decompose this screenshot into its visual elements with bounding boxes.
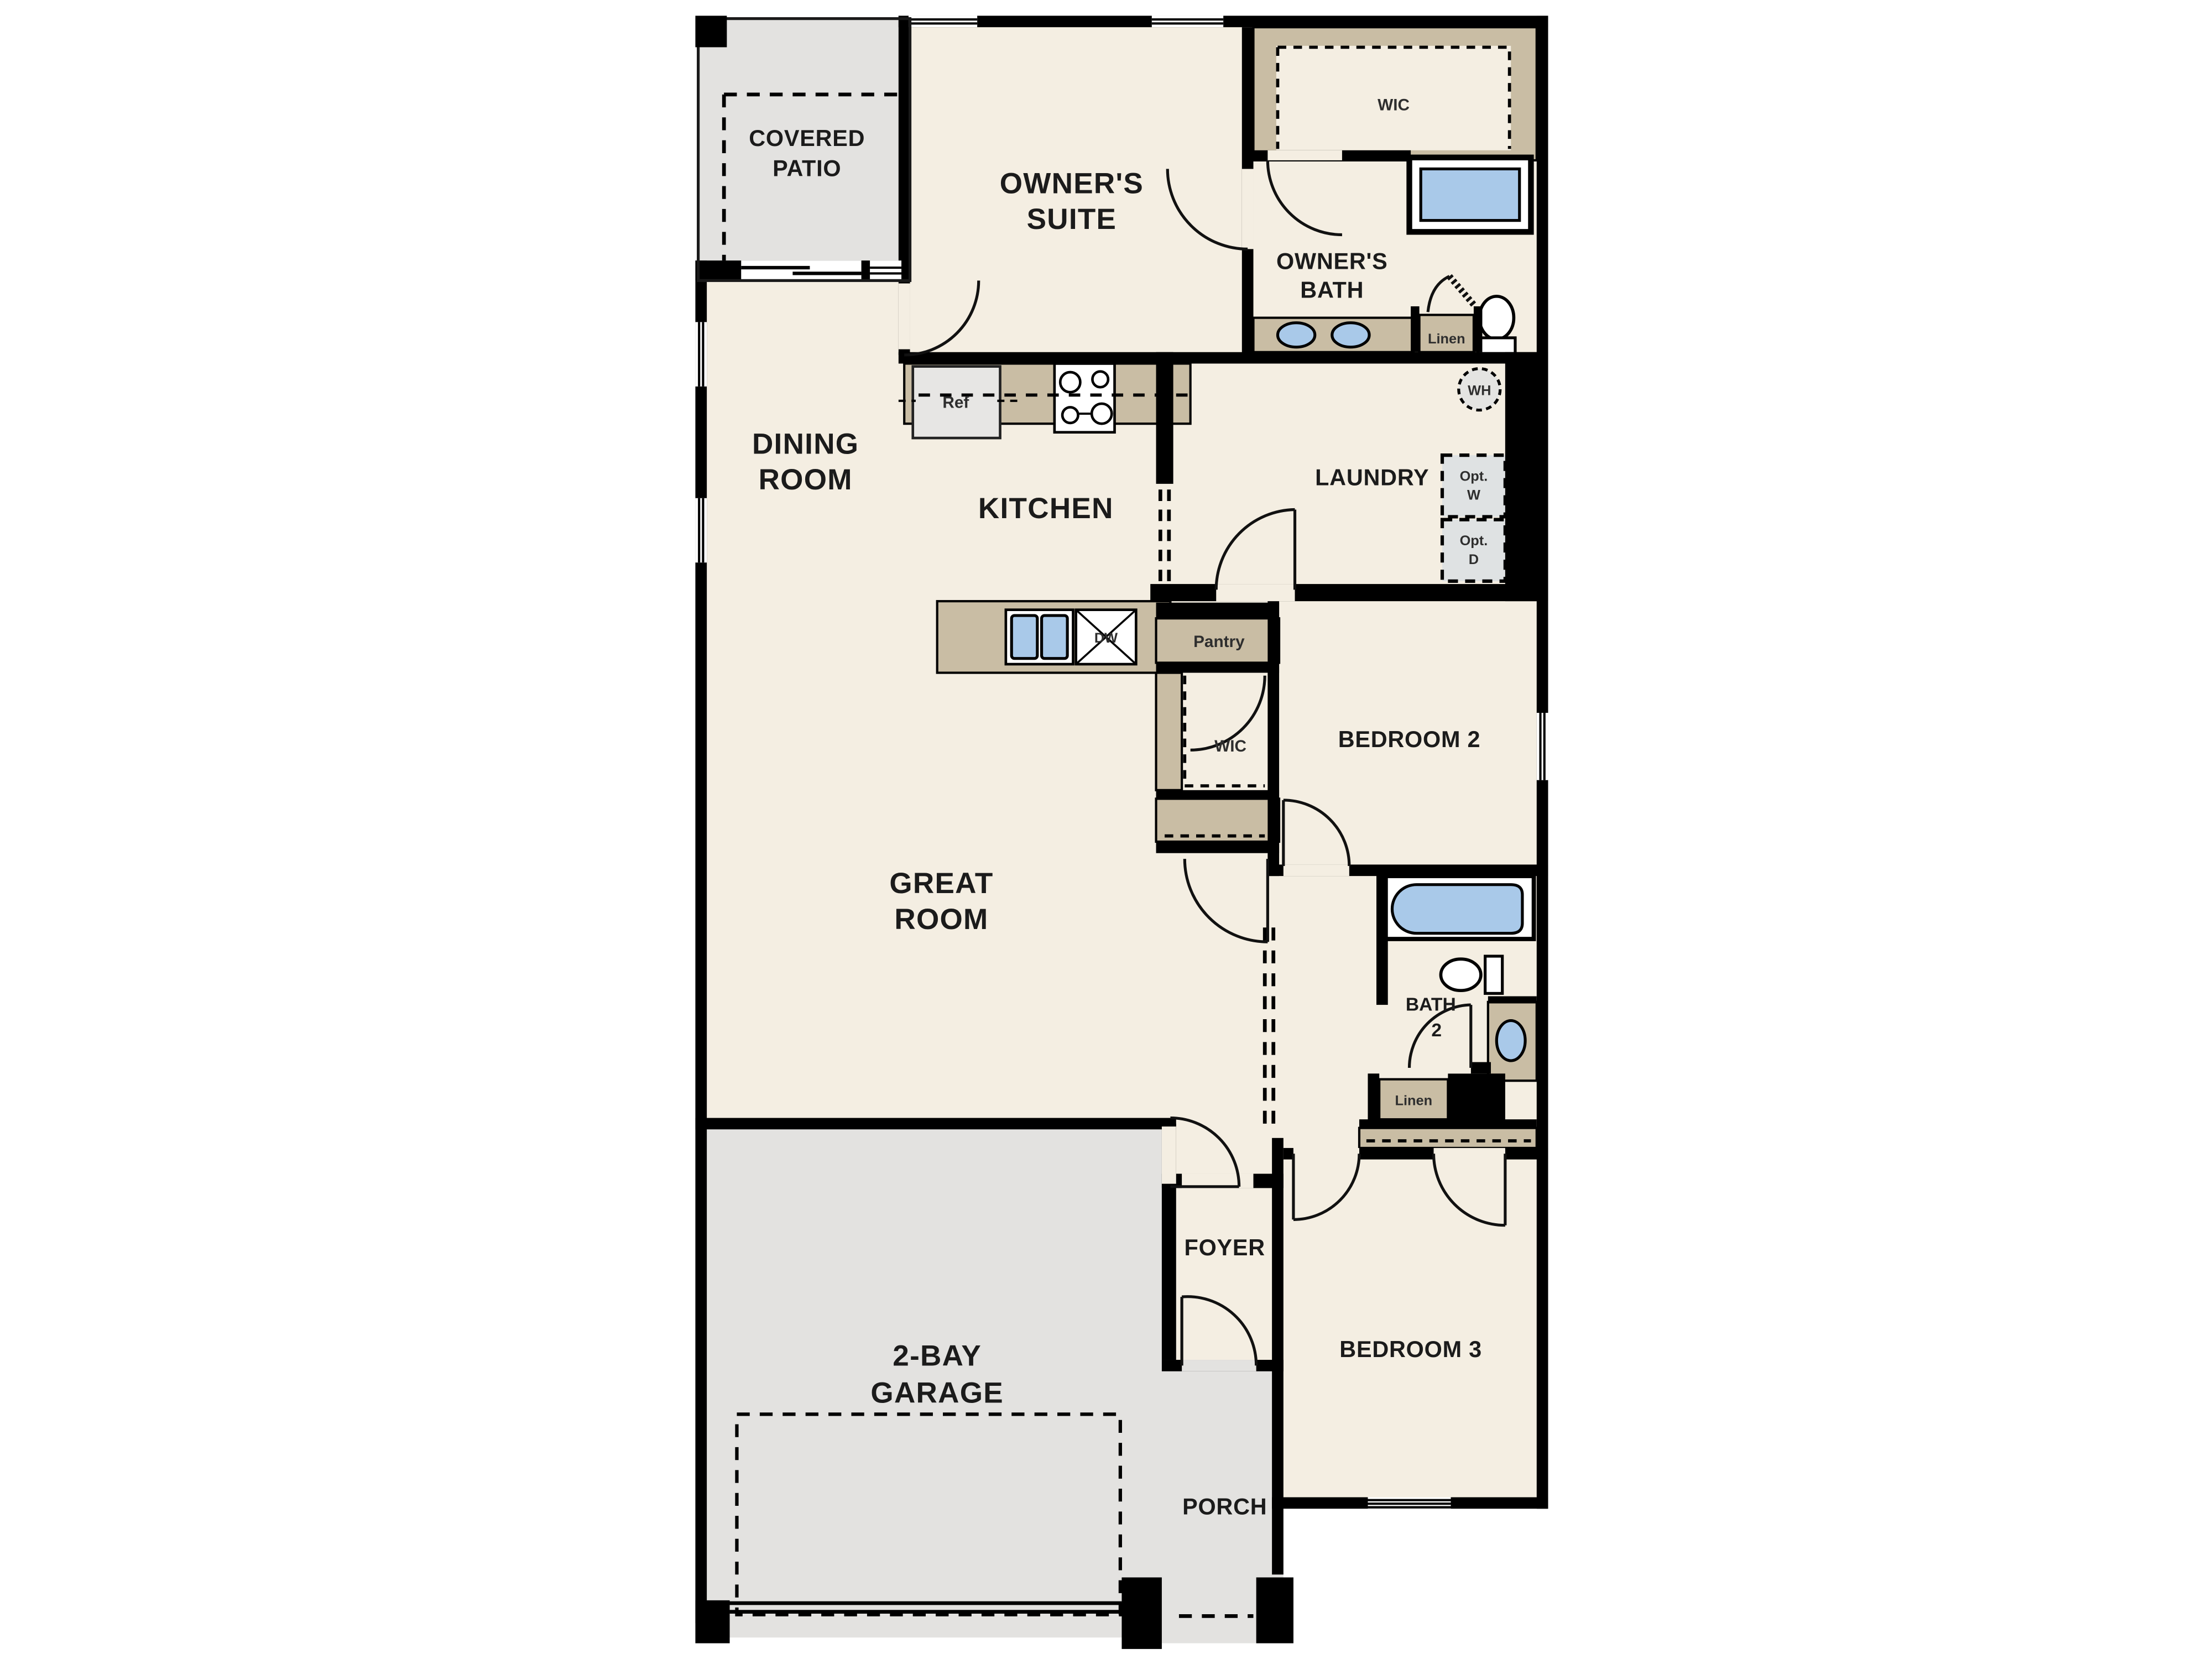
toilet-tank bbox=[1485, 956, 1503, 993]
wall-laundry-right-thick bbox=[1505, 352, 1548, 601]
toilet-icon bbox=[1441, 959, 1480, 990]
laundry-label: LAUNDRY bbox=[1315, 465, 1429, 490]
owner-linen-label: Linen bbox=[1428, 331, 1465, 347]
kitchen-label: KITCHEN bbox=[978, 492, 1114, 525]
toilet-icon bbox=[1479, 296, 1514, 340]
window-suite-top-1 bbox=[909, 15, 977, 27]
covered-patio-label-2: PATIO bbox=[773, 155, 841, 181]
dining-room-label: DINING bbox=[752, 428, 859, 461]
wall-bed3-entry-jamb bbox=[1284, 1148, 1293, 1160]
bedroom2-label: BEDROOM 2 bbox=[1338, 727, 1481, 752]
opening-owners-bath bbox=[1242, 169, 1254, 249]
owners-bath-label-2: BATH bbox=[1300, 277, 1364, 302]
dw-label: DW bbox=[1094, 630, 1118, 646]
bedroom3-closet-shelf bbox=[1359, 1128, 1537, 1148]
hall-wic-shelf-side bbox=[1156, 673, 1182, 790]
toilet-base bbox=[1478, 338, 1515, 353]
hall-wic-label: WIC bbox=[1214, 737, 1246, 755]
wall-closet3-front-right bbox=[1505, 1148, 1548, 1160]
garage-post-left bbox=[695, 1600, 729, 1644]
opening-bedroom2 bbox=[1284, 864, 1349, 876]
bath2-linen-label: Linen bbox=[1395, 1093, 1432, 1108]
wall-closet3-front-left bbox=[1359, 1148, 1434, 1160]
opt-d-label: Opt. bbox=[1460, 533, 1488, 549]
sink-icon bbox=[1332, 323, 1369, 347]
garage-label: 2-BAY bbox=[893, 1339, 982, 1372]
opt-d-label-2: D bbox=[1469, 552, 1479, 567]
wall-kitchen-laundry bbox=[1156, 352, 1173, 484]
wall-bath2-counter-edge bbox=[1488, 997, 1537, 1004]
window-dining-left-1 bbox=[695, 322, 707, 386]
covered-patio-label: COVERED bbox=[749, 126, 865, 151]
wall-closet3-top bbox=[1359, 1119, 1537, 1128]
window-bedroom3-bottom bbox=[1368, 1498, 1451, 1509]
porch-label: PORCH bbox=[1182, 1494, 1267, 1520]
island-sink-bowl bbox=[1042, 615, 1068, 659]
opening-bath2 bbox=[1410, 1062, 1471, 1074]
wall-linen2-left bbox=[1368, 1073, 1379, 1125]
wall-garage-top bbox=[695, 1118, 1176, 1130]
pantry-label: Pantry bbox=[1193, 633, 1245, 651]
owners-suite-label: OWNER'S bbox=[1000, 167, 1144, 200]
wall-wic-closet-divider bbox=[1156, 790, 1280, 799]
window-dining-left-2 bbox=[695, 498, 707, 562]
sink-icon bbox=[1496, 1021, 1525, 1061]
wall-pantry-top bbox=[1156, 603, 1280, 618]
opening-closet3 bbox=[1433, 1148, 1505, 1160]
opening-garage-foyer bbox=[1162, 1126, 1176, 1184]
window-suite-top-2 bbox=[1152, 15, 1223, 27]
opening-laundry bbox=[1216, 584, 1295, 601]
burner bbox=[1092, 372, 1108, 387]
opt-w-label-2: W bbox=[1467, 487, 1480, 503]
wall-pantry-bottom bbox=[1156, 662, 1280, 672]
opt-w-label: Opt. bbox=[1460, 469, 1488, 484]
opening-bedroom3 bbox=[1293, 1148, 1359, 1160]
bathtub-icon bbox=[1392, 885, 1522, 933]
wall-bath2-door-jamb bbox=[1471, 1062, 1491, 1074]
wall-bedroom2-left bbox=[1267, 594, 1279, 876]
owners-suite-label-2: SUITE bbox=[1027, 203, 1117, 236]
window-dining-patio bbox=[870, 260, 901, 280]
foyer-label: FOYER bbox=[1185, 1235, 1265, 1260]
great-room-label-2: ROOM bbox=[894, 903, 988, 936]
great-room-label: GREAT bbox=[889, 867, 993, 900]
owner-wic-label: WIC bbox=[1378, 96, 1410, 114]
wall-laundry-bottom bbox=[1150, 584, 1548, 601]
wall-bedroom3-porch-left bbox=[1272, 1138, 1284, 1574]
opening-dining-suite bbox=[899, 284, 910, 349]
floor-plan: COVERED PATIO OWNER'S SUITE WIC OWNER'S … bbox=[0, 0, 2212, 1659]
shower-pan bbox=[1421, 169, 1520, 220]
burner bbox=[1060, 372, 1080, 392]
ref-label: Ref bbox=[942, 394, 969, 412]
burner bbox=[1092, 404, 1112, 424]
optional-washer-box bbox=[1442, 455, 1505, 517]
wall-linen-left bbox=[1411, 306, 1420, 352]
wall-bath2-left bbox=[1376, 870, 1388, 1005]
dining-room-label-2: ROOM bbox=[759, 463, 853, 496]
wall-linen2-right-mass bbox=[1448, 1073, 1505, 1125]
garage-label-2: GARAGE bbox=[870, 1377, 1004, 1410]
sink-icon bbox=[1277, 323, 1314, 347]
wall-left bbox=[695, 260, 707, 1623]
owners-bath-label: OWNER'S bbox=[1276, 249, 1388, 274]
wall-linen-right bbox=[1474, 306, 1483, 352]
floor-plan-drawing: COVERED PATIO OWNER'S SUITE WIC OWNER'S … bbox=[0, 0, 2212, 1659]
wall-suite-left bbox=[899, 15, 910, 280]
patio-sliding-door bbox=[741, 260, 861, 280]
wh-label: WH bbox=[1468, 383, 1491, 398]
burner bbox=[1062, 407, 1078, 422]
opening-owner-wic bbox=[1267, 150, 1342, 160]
window-bedroom2-right bbox=[1537, 713, 1548, 780]
wall-closet-bottom bbox=[1156, 842, 1280, 853]
island-sink-bowl bbox=[1011, 615, 1037, 659]
wall-suite-bottom bbox=[899, 352, 1548, 364]
garage-post-right bbox=[1121, 1577, 1161, 1648]
bedroom3-label: BEDROOM 3 bbox=[1339, 1337, 1482, 1362]
bath2-label-2: 2 bbox=[1431, 1020, 1442, 1041]
bath2-label: BATH bbox=[1406, 994, 1456, 1015]
patio-corner-post bbox=[695, 15, 727, 47]
optional-dryer-box bbox=[1442, 520, 1505, 581]
opening-front-door bbox=[1182, 1360, 1256, 1371]
